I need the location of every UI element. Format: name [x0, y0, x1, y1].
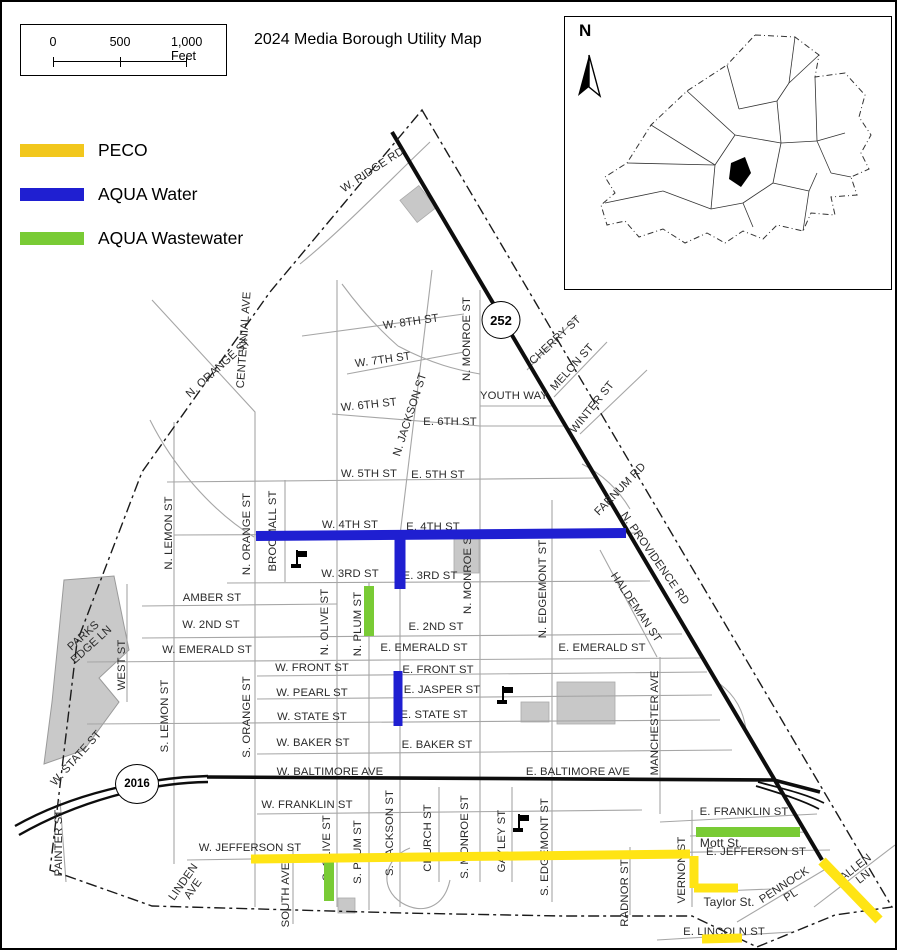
route-shields: 2522016: [2, 2, 895, 948]
utility-map-page: W. RIDGE RDW. 8TH STW. 7TH STW. 6TH STE.…: [0, 0, 897, 950]
route-shield-252: 252: [482, 301, 521, 339]
route-shield-2016: 2016: [115, 764, 159, 804]
